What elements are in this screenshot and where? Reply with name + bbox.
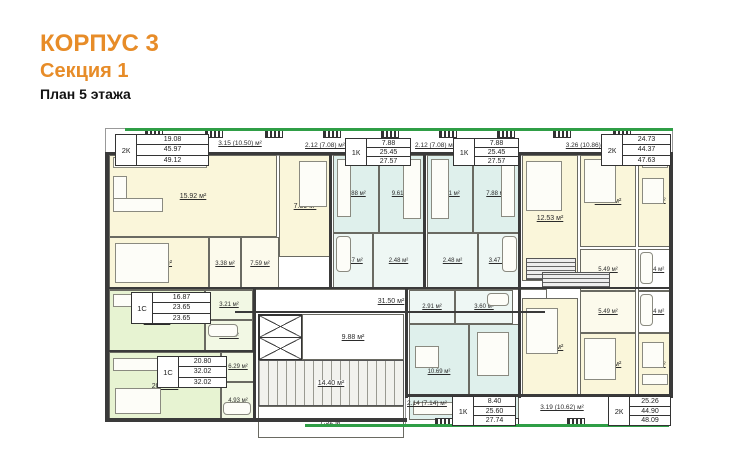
bathtub (487, 293, 509, 306)
title-block: КОРПУС 3 Секция 1 План 5 этажа (40, 30, 159, 102)
bed (526, 161, 562, 211)
total-area: 25.45 (367, 148, 410, 157)
bathtub (223, 402, 251, 415)
bathtub (640, 252, 653, 284)
wardrobe (542, 272, 610, 288)
room-area-label: 2.91 м² (422, 304, 441, 310)
total-area: 23.65 (153, 303, 210, 313)
balcony-rail-tick (323, 130, 341, 138)
apartment-type: 2К (609, 397, 630, 425)
bed (584, 338, 616, 380)
apartment-spec-table: 1С 20.8032.0232.02 (157, 356, 227, 388)
dining-table (642, 342, 664, 368)
living-area: 25.26 (630, 397, 670, 407)
unit-divider (518, 288, 521, 398)
total-area: 44.37 (623, 145, 670, 155)
floor-plan-drawing: 15.92 м² 7.39 м² 11.69 м² 3.38 м² 7.59 м… (105, 128, 673, 445)
room-area-label: 3.21 м² (219, 302, 238, 308)
bathtub (336, 236, 351, 272)
total-area: 25.45 (475, 148, 518, 157)
kitchen-counter (403, 159, 421, 219)
living-area: 7.88 (367, 139, 410, 148)
balcony-rail-tick (381, 130, 399, 138)
sofa (113, 198, 163, 212)
living-area: 20.80 (179, 357, 226, 367)
apartment-spec-table: 1К 7.8825.4527.57 (345, 138, 411, 166)
elevator-shafts (258, 314, 302, 360)
section-title: Секция 1 (40, 60, 159, 83)
room-area-label: 7.59 м² (250, 261, 269, 267)
elevator-hall: 9.88 м² (302, 314, 404, 360)
total-with-balcony: 47.63 (623, 156, 670, 165)
balcony-rail-tick (497, 130, 515, 138)
kitchen-counter (642, 374, 668, 385)
room-hallway: 3.21 м² (205, 290, 253, 320)
room-hallway: 2.48 м² (373, 233, 424, 289)
bathtub (502, 236, 517, 272)
room-area-label: 12.53 м² (537, 215, 564, 222)
sofa (501, 159, 515, 217)
total-with-balcony: 49.12 (137, 156, 208, 165)
apartment-spec-table: 1К 7.8825.4527.57 (453, 138, 519, 166)
total-with-balcony: 27.74 (474, 416, 515, 425)
living-area: 8.40 (474, 397, 515, 407)
room-area-label: 15.92 м² (180, 193, 207, 200)
room-hallway: 7.59 м² (241, 237, 279, 290)
apartment-type: 2К (116, 135, 137, 165)
bathtub (640, 294, 653, 326)
floor-title: План 5 этажа (40, 86, 159, 102)
total-area: 44.90 (630, 407, 670, 417)
room-hallway: 5.49 м² (580, 291, 636, 333)
balcony-area-label: 3.19 (10.62) м² (517, 404, 607, 411)
total-with-balcony: 48.09 (630, 416, 670, 425)
room-hallway: 2.91 м² (409, 290, 455, 324)
apartment-spec-table: 2К 19.0845.9749.12 (115, 134, 209, 166)
unit-divider (405, 288, 408, 398)
sofa (337, 159, 351, 217)
studio-divider (105, 350, 255, 352)
apartment-spec-table: 1К 8.4025.6027.74 (452, 396, 516, 426)
stairwell: 14.40 м² (258, 360, 404, 406)
bed (526, 308, 558, 354)
apartment-type: 1К (346, 139, 367, 165)
bed (299, 161, 327, 207)
balcony-area-label: 2.14 (7.14) м² (403, 400, 451, 407)
room-area-label: 31.50 м² (378, 298, 405, 305)
unit-divider (253, 288, 256, 422)
bathtub (208, 324, 238, 337)
outer-wall-right (669, 152, 673, 398)
apartment-type: 1С (132, 293, 153, 323)
room-area-label: 2.48 м² (443, 258, 462, 264)
corridor-wall-north (105, 287, 671, 289)
apartment-type: 1К (454, 139, 475, 165)
unit-divider (518, 152, 521, 289)
total-area: 32.02 (179, 367, 226, 377)
apartment-type: 1К (453, 397, 474, 425)
bed (115, 243, 169, 283)
outer-wall-bottom-left (105, 418, 407, 422)
living-area: 24.73 (623, 135, 670, 145)
total-area: 45.97 (137, 145, 208, 155)
bed (477, 332, 509, 376)
floor-plan-page: КОРПУС 3 Секция 1 План 5 этажа (0, 0, 740, 472)
balcony-rail-tick (439, 130, 457, 138)
apartment-type: 1С (158, 357, 179, 387)
elevator-cell (259, 315, 302, 338)
apartment-type: 2К (602, 135, 623, 165)
total-with-balcony: 23.65 (153, 314, 210, 323)
room-area-label: 6.29 м² (228, 364, 247, 370)
kitchen-counter (431, 159, 449, 219)
living-area: 7.88 (475, 139, 518, 148)
total-with-balcony: 27.57 (475, 157, 518, 165)
apartment-spec-table: 2К 25.2644.9048.09 (608, 396, 671, 426)
room-area-label: 14.40 м² (316, 380, 347, 387)
unit-divider (423, 152, 426, 289)
elevator-cell (259, 337, 302, 360)
apartment-spec-table: 2К 24.7344.3747.63 (601, 134, 671, 166)
unit-divider (329, 152, 332, 289)
living-area: 16.87 (153, 293, 210, 303)
room-area-label: 3.38 м² (215, 261, 234, 267)
outer-wall-left (105, 152, 109, 420)
room-bathroom: 3.38 м² (209, 237, 241, 290)
total-area: 25.60 (474, 407, 515, 417)
living-area: 19.08 (137, 135, 208, 145)
bed (115, 388, 161, 414)
dining-table (415, 346, 439, 368)
apartment-spec-table: 1С 16.8723.6523.65 (131, 292, 211, 324)
room-area-label: 10.69 м² (428, 369, 451, 375)
sofa (113, 358, 159, 371)
total-with-balcony: 32.02 (179, 378, 226, 387)
room-area-label: 5.49 м² (598, 309, 617, 315)
dining-table (642, 178, 664, 204)
total-with-balcony: 27.57 (367, 157, 410, 165)
corridor-wall-south (235, 311, 545, 313)
room-hallway: 2.48 м² (427, 233, 478, 289)
balcony-rail-tick (553, 130, 571, 138)
top-facade-line (125, 128, 673, 131)
balcony-rail-tick (265, 130, 283, 138)
room-area-label: 9.88 м² (342, 334, 365, 341)
entrance-lobby: 7.92 м² (258, 406, 404, 438)
room-area-label: 2.48 м² (389, 258, 408, 264)
building-title: КОРПУС 3 (40, 30, 159, 58)
